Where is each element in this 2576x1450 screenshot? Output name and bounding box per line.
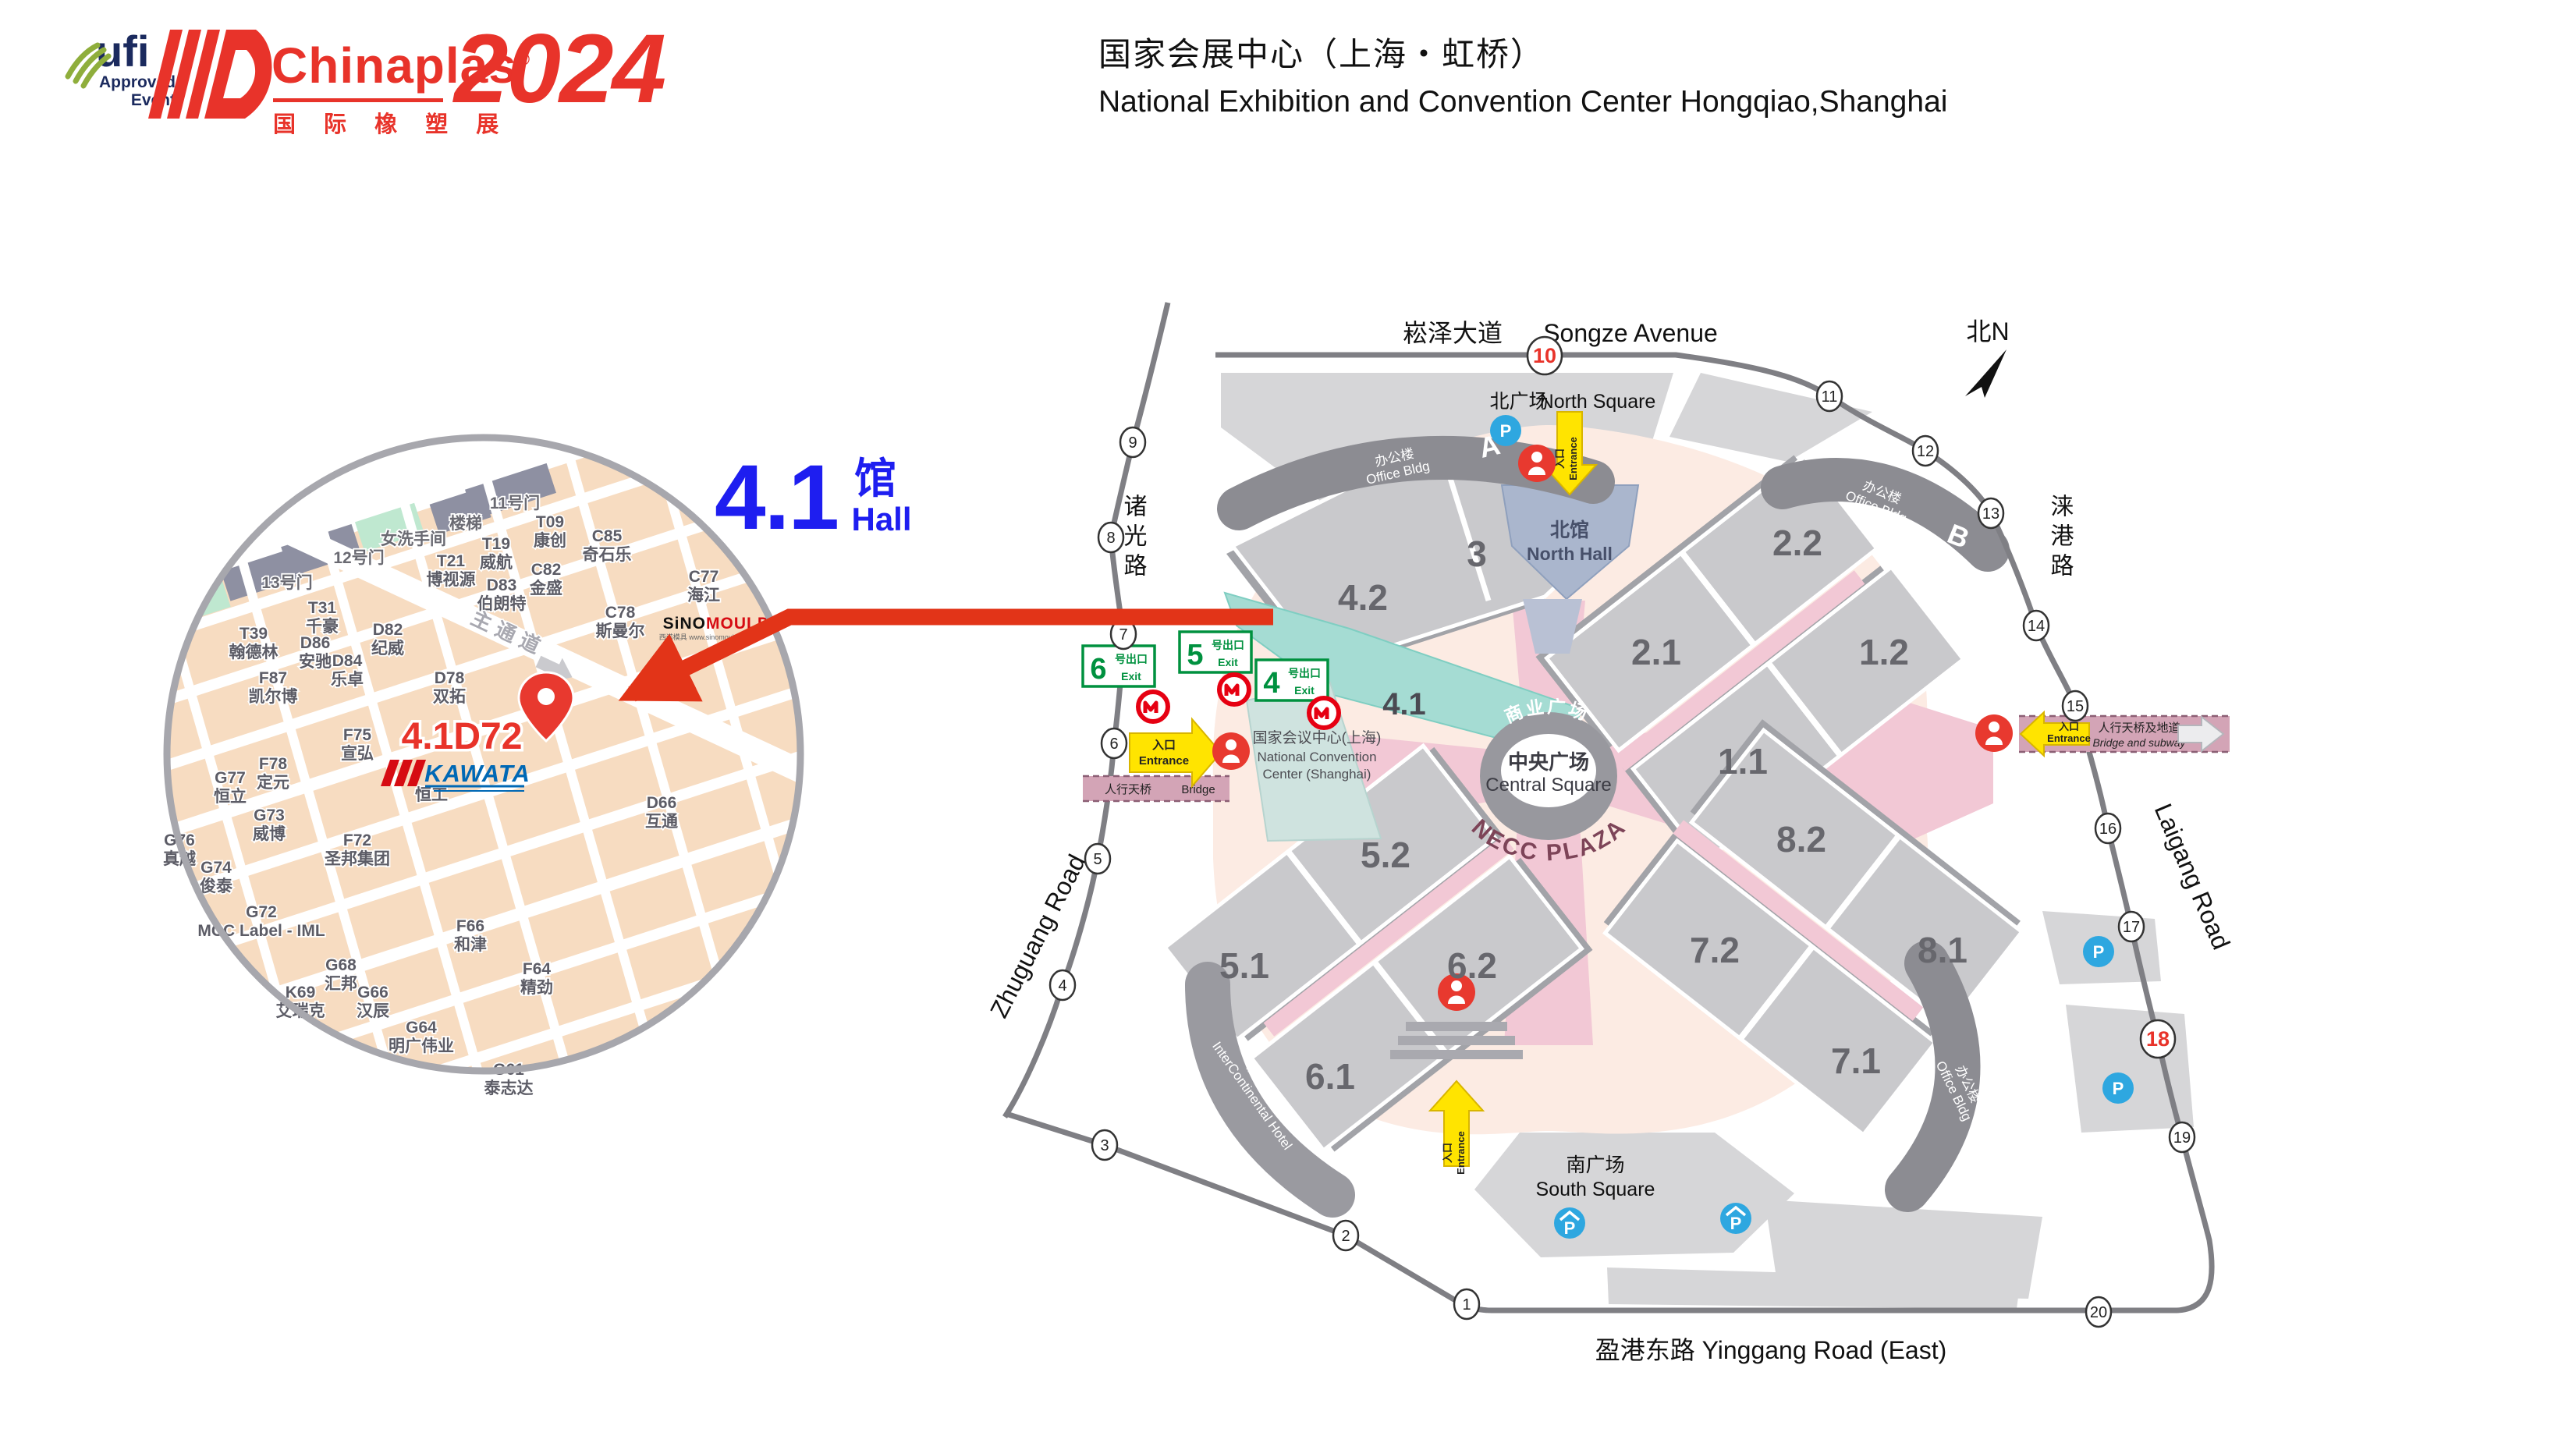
svg-text:凯尔博: 凯尔博 [249,687,298,706]
svg-text:博视源: 博视源 [427,570,476,589]
svg-text:G77: G77 [215,769,246,787]
svg-text:汉辰: 汉辰 [357,1002,389,1020]
svg-text:Exit: Exit [1218,656,1238,668]
gate-label: 女洗手间 [381,530,446,548]
hall-label-8.2: 8.2 [1776,819,1826,860]
svg-text:16: 16 [2099,821,2117,838]
svg-text:金盛: 金盛 [529,579,562,597]
svg-text:定元: 定元 [257,773,289,792]
svg-text:F64: F64 [523,960,552,978]
svg-text:G68: G68 [325,956,357,974]
hall-label-4.2: 4.2 [1338,577,1388,618]
parking-icon: P [2083,936,2114,967]
svg-text:19: 19 [2173,1129,2191,1147]
north-square-en: North Square [1540,391,1656,413]
sinomould-black: SiNO [663,615,706,633]
svg-text:18: 18 [2146,1027,2170,1051]
svg-text:F72: F72 [343,831,371,849]
bridge-west: 人行天桥 Bridge [1083,776,1229,801]
booth-label-G74: G74俊泰 [200,859,233,895]
site-map: 北馆 North Hall 办公楼 Office Bldg A 办公楼 Offi… [985,303,2236,1364]
svg-text:海江: 海江 [687,586,720,604]
booth-label-D82: D82纪威 [371,621,404,658]
svg-text:4: 4 [1263,667,1279,700]
road-marker-10: 10 [1528,337,1562,374]
road-marker-15: 15 [2063,691,2088,721]
svg-text:9: 9 [1128,434,1137,452]
entrance-north-en: Entrance [1567,437,1579,480]
svg-text:乐卓: 乐卓 [331,670,364,689]
gate-label: 12号门 [333,548,384,567]
svg-text:康创: 康创 [534,531,566,550]
svg-text:威航: 威航 [480,553,513,572]
svg-text:T09: T09 [536,513,564,531]
svg-text:F78: F78 [259,755,288,773]
svg-text:安驰: 安驰 [299,652,332,671]
svg-text:11: 11 [1822,388,1838,406]
svg-text:恒立: 恒立 [214,787,247,806]
svg-text:P: P [1500,421,1512,441]
metro-exit-6: 6号出口Exit [1083,646,1155,686]
metro-logo-icon [1219,675,1249,704]
hall-label-2.1: 2.1 [1631,632,1681,672]
svg-text:T21: T21 [437,552,466,570]
svg-text:5: 5 [1093,851,1102,868]
road-marker-17: 17 [2119,912,2144,941]
road-marker-8: 8 [1098,523,1123,552]
svg-text:1: 1 [1462,1296,1471,1314]
entrance-person-icon [1212,732,1250,770]
parking-icon: P [1490,415,1521,446]
svg-text:翰德林: 翰德林 [229,643,279,661]
road-marker-13: 13 [1978,498,2003,528]
road-marker-9: 9 [1120,427,1145,457]
road-marker-20: 20 [2086,1297,2111,1327]
booth-label-G73: G73威博 [253,807,286,843]
booth-label-恒工: 恒工 [415,785,448,804]
hall-label-7.1: 7.1 [1831,1041,1881,1081]
svg-text:D84: D84 [332,652,363,670]
booth-label-T31: T31千豪 [306,599,339,636]
road-marker-12: 12 [1913,436,1938,466]
svg-text:G66: G66 [357,984,389,1002]
booth-label-G77: G77恒立 [214,769,247,806]
svg-text:D83: D83 [487,576,517,594]
booth-label-C77: C77海江 [687,568,720,604]
svg-text:G74: G74 [200,859,232,877]
laigang-road-en: Laigang Road [2149,799,2236,954]
svg-text:C77: C77 [689,568,719,586]
booth-label-G66: G66汉辰 [357,984,389,1020]
svg-text:号出口: 号出口 [1288,667,1321,679]
svg-text:D82: D82 [373,621,403,639]
ncc-en2: Center (Shanghai) [1263,767,1371,782]
road-marker-5: 5 [1085,844,1110,874]
metro-logo-icon [1309,698,1339,728]
road-marker-6: 6 [1102,729,1127,758]
svg-text:精劲: 精劲 [520,978,553,997]
ncc-cn: 国家会议中心(上海) [1253,729,1382,746]
songze-avenue-cn: 崧泽大道 [1403,319,1503,347]
entrance-west-en: Entrance [1139,754,1189,768]
booth-label-G68: G68汇邦 [325,956,357,993]
hall-label-2.2: 2.2 [1772,523,1822,563]
svg-text:8: 8 [1106,530,1115,547]
road-marker-16: 16 [2095,814,2120,843]
kawata-wordmark: KAWATA [424,760,530,787]
svg-text:P: P [2113,1079,2124,1098]
svg-text:P: P [1730,1214,1742,1233]
booth-highlight-label: 4.1D72 [402,716,523,757]
booth-label-D78: D78双拓 [433,669,466,706]
booth-label-F78: F78定元 [257,755,289,792]
svg-text:10: 10 [1533,344,1556,367]
bridge-west-en: Bridge [1181,783,1215,796]
aisle-arrow-icon [791,852,836,892]
svg-text:圣邦集团: 圣邦集团 [325,849,390,868]
svg-text:Exit: Exit [1294,684,1315,697]
metro-exit-5: 5号出口Exit [1180,632,1251,672]
hall-label-5.2: 5.2 [1361,835,1410,875]
callout-en: Hall [851,501,911,537]
svg-text:斯曼尔: 斯曼尔 [596,622,645,640]
booth-label-D66: D66互通 [645,794,678,831]
compass: 北N [1965,317,2010,398]
road-marker-14: 14 [2024,611,2049,640]
svg-text:D86: D86 [300,634,331,652]
svg-text:12: 12 [1917,443,1934,460]
svg-text:奇石乐: 奇石乐 [583,546,632,564]
svg-text:千豪: 千豪 [306,617,339,636]
gate-label: 楼梯 [449,514,482,533]
svg-text:F75: F75 [343,726,372,744]
svg-text:号出口: 号出口 [1212,639,1244,651]
svg-text:6: 6 [1109,736,1118,753]
south-square-cn: 南广场 [1566,1154,1624,1176]
svg-text:C78: C78 [605,604,636,622]
svg-text:D66: D66 [647,794,677,812]
road-marker-3: 3 [1092,1130,1117,1160]
bridge-east: 人行天桥及地道 Bridge and subway 入口 Entrance [2019,712,2230,756]
svg-text:恒工: 恒工 [415,785,448,804]
hall-label-5.1: 5.1 [1219,945,1269,986]
svg-text:20: 20 [2090,1304,2107,1321]
svg-text:Exit: Exit [1121,670,1141,682]
svg-text:F87: F87 [259,669,287,687]
svg-text:G64: G64 [406,1019,437,1037]
entrance-east-en: Entrance [2047,732,2091,744]
svg-text:T19: T19 [482,535,510,553]
svg-text:G73: G73 [254,807,285,824]
svg-text:6: 6 [1090,653,1106,686]
svg-text:威博: 威博 [253,824,286,843]
booth-label-D86: D86安驰 [299,634,332,671]
svg-text:T31: T31 [308,599,337,617]
hall-label-7.2: 7.2 [1690,930,1740,970]
entrance-east-cn: 入口 [2059,721,2079,732]
hall-label-1.2: 1.2 [1859,632,1909,672]
svg-text:互通: 互通 [645,813,678,831]
kawata-logo: KAWATA [381,760,530,791]
svg-text:明广伟业: 明广伟业 [389,1037,454,1055]
svg-text:7: 7 [1119,626,1127,643]
svg-text:C85: C85 [592,527,623,545]
gate-label: 13号门 [261,573,312,592]
booth-label-F75: F75宣弘 [341,726,374,763]
hall-label-8.1: 8.1 [1918,930,1967,970]
bridge-east-en: Bridge and subway [2092,736,2186,749]
svg-text:双拓: 双拓 [433,688,466,706]
hall-label-1.1: 1.1 [1718,741,1768,782]
bridge-east-cn: 人行天桥及地道 [2098,721,2180,735]
booth-label-T19: T19威航 [480,535,513,572]
road-marker-4: 4 [1050,970,1075,1000]
covered-parking-icon: P [1720,1203,1751,1234]
svg-text:17: 17 [2123,919,2140,936]
north-hall-cn: 北馆 [1550,519,1589,541]
parking-icon: P [2102,1072,2134,1104]
page: ufi Approved Event Chinaplas® 国 际 橡 塑 展 … [0,0,2576,1450]
booth-label-D84: D84乐卓 [331,652,364,689]
svg-text:5: 5 [1187,639,1203,672]
svg-text:14: 14 [2028,618,2045,635]
metro-logo-icon [1138,692,1168,721]
svg-text:俊泰: 俊泰 [200,877,233,895]
hall-label-6.2: 6.2 [1447,945,1497,986]
svg-text:15: 15 [2067,698,2084,715]
yinggang-road-label: 盈港东路 Yinggang Road (East) [1595,1336,1947,1364]
ncc-en1: National Convention [1257,750,1376,764]
booth-label-T09: T09康创 [534,513,566,550]
road-marker-2: 2 [1333,1221,1358,1250]
hall-label-3: 3 [1467,534,1487,574]
svg-text:K69: K69 [286,984,316,1002]
road-marker-19: 19 [2170,1122,2195,1152]
entrance-south-cn: 入口 [1442,1143,1453,1163]
songze-avenue-en: Songze Avenue [1543,319,1718,347]
compass-needle-icon [1965,349,2007,398]
svg-text:3: 3 [1100,1137,1109,1154]
svg-text:D78: D78 [435,669,465,687]
booth-label-F66: F66和津 [454,917,487,954]
svg-text:2: 2 [1341,1228,1350,1245]
compass-label: 北N [1966,317,2009,346]
plaza-cn: 中央广场 [1508,750,1589,774]
booth-label-C82: C82金盛 [529,561,562,597]
booth-label-F64: F64精劲 [520,960,553,997]
svg-text:号出口: 号出口 [1115,653,1148,665]
svg-text:和津: 和津 [454,936,487,954]
entrance-north-cn: 入口 [1554,448,1566,469]
plaza-en: Central Square [1485,775,1611,796]
svg-text:宣弘: 宣弘 [341,744,374,763]
entrance-person-icon [1518,445,1556,482]
zhuguang-road-en: Zhuguang Road [985,850,1091,1023]
svg-text:P: P [2093,942,2105,962]
svg-text:汇邦: 汇邦 [325,975,357,993]
gate-label: 11号门 [490,494,540,512]
entrance-south-en: Entrance [1455,1131,1467,1175]
office-c-letter: C [2000,1136,2038,1168]
venue-map: 北馆 North Hall 办公楼 Office Bldg A 办公楼 Offi… [0,0,2576,1450]
road-marker-18: 18 [2141,1020,2175,1058]
svg-text:T39: T39 [240,625,268,643]
hall-label-6.1: 6.1 [1305,1056,1355,1097]
hall-label-4.1: 4.1 [1382,687,1426,721]
svg-text:纪威: 纪威 [371,639,404,658]
south-square-en: South Square [1536,1179,1655,1200]
svg-text:G72: G72 [246,903,277,921]
svg-text:13: 13 [1982,505,1999,523]
svg-text:P: P [1564,1218,1576,1238]
metro-exit-4: 4号出口Exit [1256,660,1328,700]
hall-callout: 4.1 馆 Hall [715,446,912,549]
covered-parking-icon: P [1554,1207,1585,1239]
svg-text:C82: C82 [531,561,562,579]
road-marker-11: 11 [1817,381,1842,411]
callout-number: 4.1 [715,446,838,549]
bridge-west-cn: 人行天桥 [1105,783,1151,796]
callout-cn: 馆 [854,456,896,502]
entrance-west-cn: 入口 [1152,739,1176,752]
svg-text:泰志达: 泰志达 [484,1079,534,1097]
road-marker-1: 1 [1454,1289,1479,1319]
svg-text:4: 4 [1058,977,1066,994]
svg-text:F66: F66 [456,917,484,935]
north-hall-en: North Hall [1527,544,1613,564]
laigang-road-cn: 涞港路 [2047,494,2074,583]
entrance-person-icon [1975,714,2013,752]
